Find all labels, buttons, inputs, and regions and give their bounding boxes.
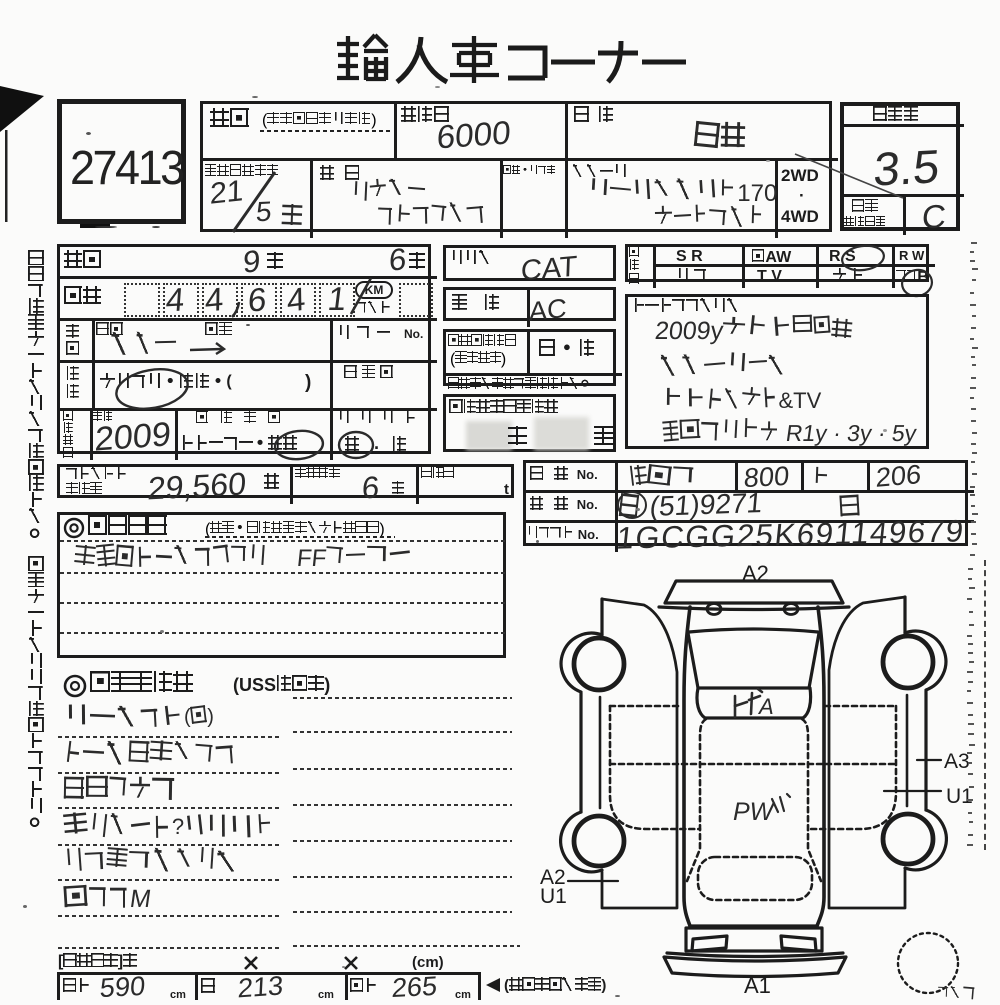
svg-text:U1: U1 — [946, 785, 973, 808]
svg-text:A: A — [757, 694, 774, 719]
svg-text:U1: U1 — [540, 885, 567, 908]
svg-text:A3: A3 — [944, 750, 970, 773]
svg-text:A1: A1 — [744, 973, 771, 998]
svg-text:PW: PW — [733, 798, 776, 826]
